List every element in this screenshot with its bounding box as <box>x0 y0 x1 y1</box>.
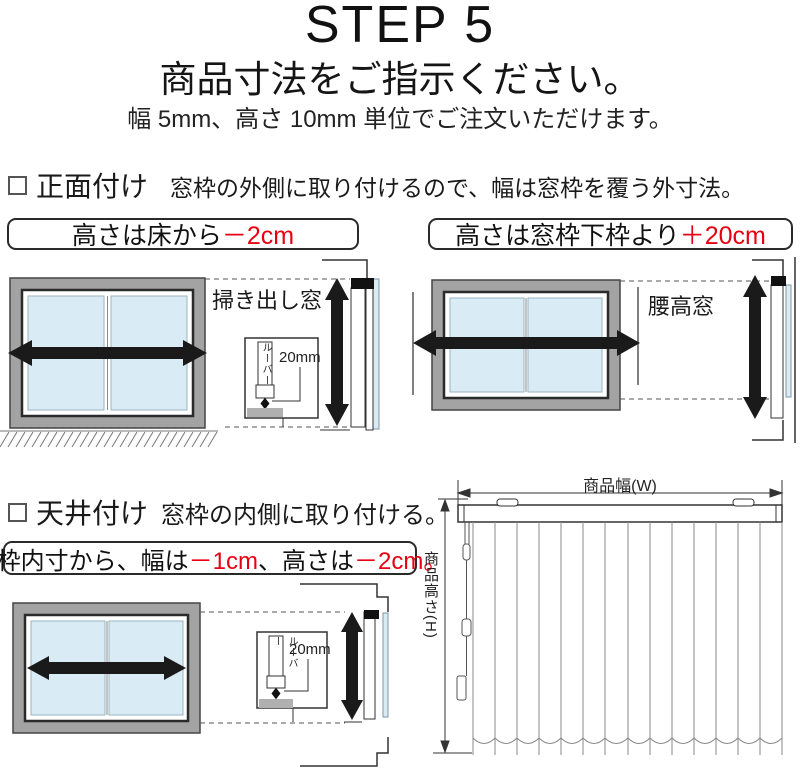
instruction-page: STEP 5 商品寸法をご指示ください。 幅 5mm、高さ 10mm 単位でご注… <box>0 0 800 783</box>
sill-height-note-text: 高さは窓枠下枠より <box>455 216 680 252</box>
checkbox-icon <box>8 176 27 195</box>
checkbox-icon <box>8 503 27 522</box>
note-part-1: 窓枠内寸から、幅は <box>0 541 189 576</box>
ceiling-mount-note: 窓枠内寸から、幅は－1cm、高さは－2cm。 <box>3 541 417 575</box>
gap-label: 20mm <box>289 641 331 658</box>
page-subtitle: 幅 5mm、高さ 10mm 単位でご注文いただけます。 <box>0 99 800 134</box>
note-part-2: 、高さは <box>258 541 354 576</box>
louver-label: ルーバー <box>258 342 273 386</box>
height-arrow <box>743 275 767 419</box>
floor-window-diagram <box>0 255 400 470</box>
sill-height-note: 高さは窓枠下枠より＋20cm <box>428 218 793 250</box>
side-view <box>743 257 795 443</box>
front-mount-title: 正面付け <box>36 165 148 205</box>
inner-height-arrow <box>341 612 363 720</box>
note-value-1: －1cm <box>189 541 258 576</box>
ground-hatching <box>0 431 218 447</box>
slats <box>473 522 782 755</box>
ceiling-mount-description: 窓枠の内側に取り付ける。 <box>161 495 449 530</box>
waist-window-label: 腰高窓 <box>648 289 714 321</box>
mount-bracket <box>497 499 518 506</box>
waist-window-diagram <box>400 255 800 470</box>
ceiling-mount-diagram <box>0 583 400 783</box>
product-height-label: 商品高さ(H) <box>420 551 441 639</box>
height-arrow <box>325 278 349 426</box>
side-view <box>320 260 379 430</box>
gap-label: 20mm <box>279 349 321 366</box>
floor-height-note: 高さは床から－2cm <box>7 218 359 250</box>
product-dimension-diagram <box>420 468 800 783</box>
floor-height-note-value: －2cm <box>222 216 294 252</box>
control-cords-and-wand <box>457 522 471 700</box>
floor-window-label: 掃き出し窓 <box>212 283 322 315</box>
ceiling-mount-title: 天井付け <box>36 492 148 532</box>
mount-bracket <box>733 499 754 506</box>
product-width-label: 商品幅(W) <box>470 472 770 496</box>
floor-height-note-text: 高さは床から <box>72 216 222 252</box>
page-title: 商品寸法をご指示ください。 <box>0 49 800 103</box>
front-mount-section-header: 正面付け 窓枠の外側に取り付けるので、幅は窓枠を覆う外寸法。 <box>8 165 744 205</box>
headrail <box>458 499 782 522</box>
sill-height-note-value: ＋20cm <box>680 216 766 252</box>
ceiling-mount-section-header: 天井付け 窓枠の内側に取り付ける。 <box>8 492 449 532</box>
step-number: STEP 5 <box>0 0 800 53</box>
front-mount-description: 窓枠の外側に取り付けるので、幅は窓枠を覆う外寸法。 <box>170 169 744 203</box>
